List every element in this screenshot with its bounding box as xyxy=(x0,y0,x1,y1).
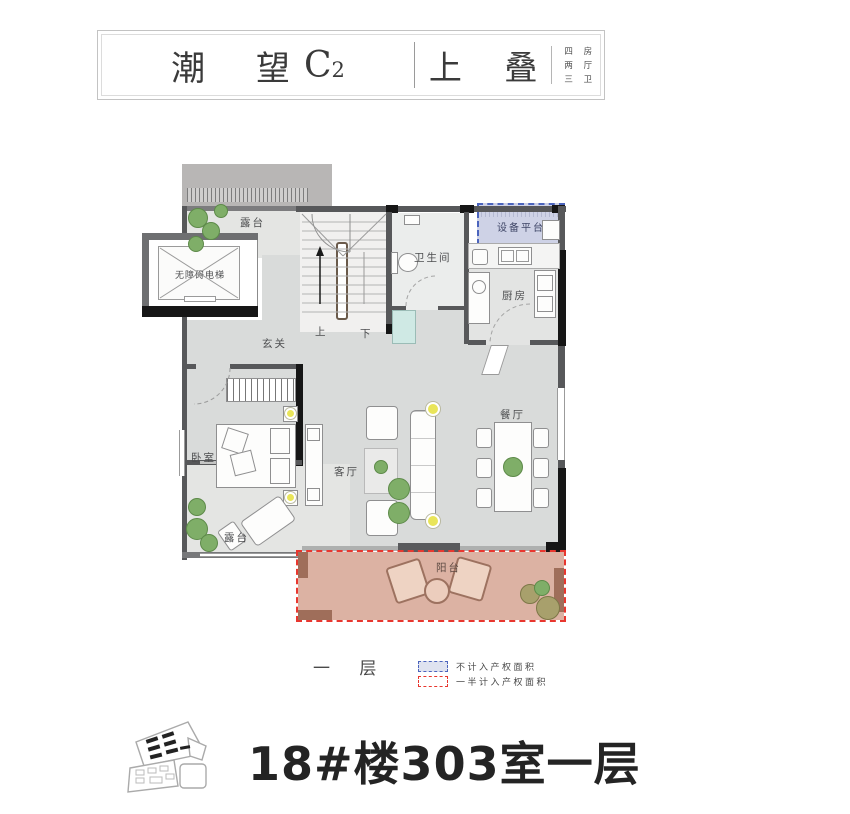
legend-item-red: 一半计入产权面积 xyxy=(418,675,548,688)
legend-item-blue: 不计入产权面积 xyxy=(418,660,537,673)
legend-swatch-blue xyxy=(418,661,448,672)
terrace-bottom-label: 露台 xyxy=(224,530,249,545)
legend-label-blue: 不计入产权面积 xyxy=(456,660,537,673)
kitchen-label: 厨房 xyxy=(502,288,527,303)
legend-swatch-red xyxy=(418,676,448,687)
footer-unit-title: 18#楼303室一层 xyxy=(248,728,641,794)
foyer-label: 玄关 xyxy=(262,336,287,351)
terrace-top-label: 露台 xyxy=(240,215,265,230)
balcony-label: 阳台 xyxy=(436,560,461,575)
plan-linework xyxy=(0,0,850,814)
bathroom-label: 卫生间 xyxy=(414,250,452,265)
floor-caption: 一 层 xyxy=(313,654,388,679)
living-room-label: 客厅 xyxy=(334,464,359,479)
legend-label-red: 一半计入产权面积 xyxy=(456,675,548,688)
dining-room-label: 餐厅 xyxy=(500,407,525,422)
stairs-down-label: 下 xyxy=(360,326,373,341)
siteplan-icon xyxy=(122,716,212,798)
stairs-up-label: 上 xyxy=(315,324,328,339)
floorplan-page: 潮 望 C2 上 叠 四 房 两 厅 三 卫 设备平台 xyxy=(0,0,850,814)
bedroom-label: 卧室 xyxy=(191,450,216,465)
